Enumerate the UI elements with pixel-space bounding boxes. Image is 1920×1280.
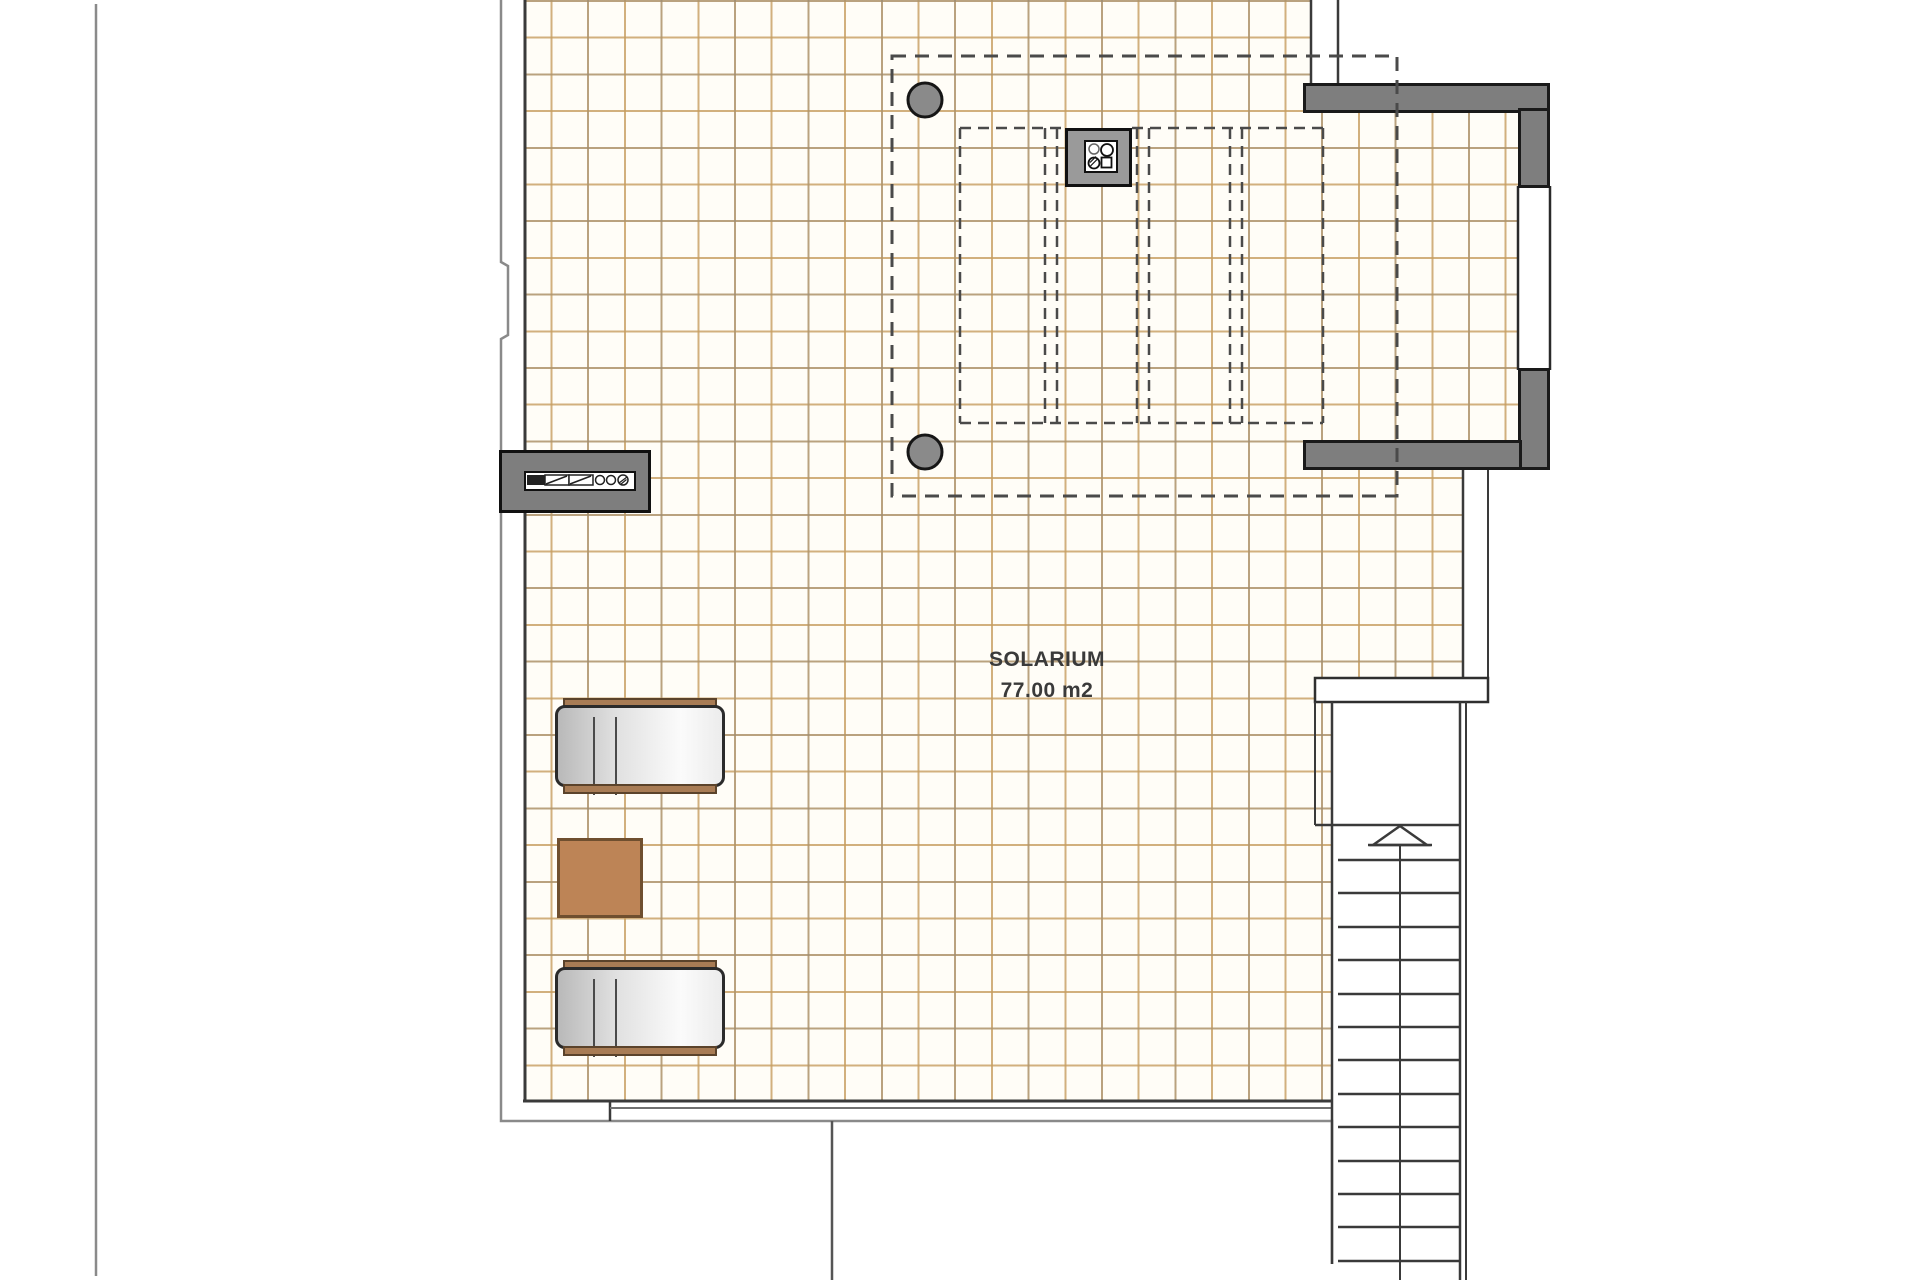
pergola-beams-dashed: [960, 128, 1323, 423]
room-area: 77.00 m2: [952, 675, 1142, 706]
pergola-outline-dashed: [892, 56, 1397, 496]
room-name: SOLARIUM: [952, 644, 1142, 675]
solarium-floor-plan: SOLARIUM 77.00 m2: [0, 0, 1920, 1280]
pergola-post-top: [908, 83, 942, 117]
pergola-post-bottom: [908, 435, 942, 469]
room-label: SOLARIUM 77.00 m2: [952, 644, 1142, 706]
pergola-linework: [0, 0, 1920, 1280]
